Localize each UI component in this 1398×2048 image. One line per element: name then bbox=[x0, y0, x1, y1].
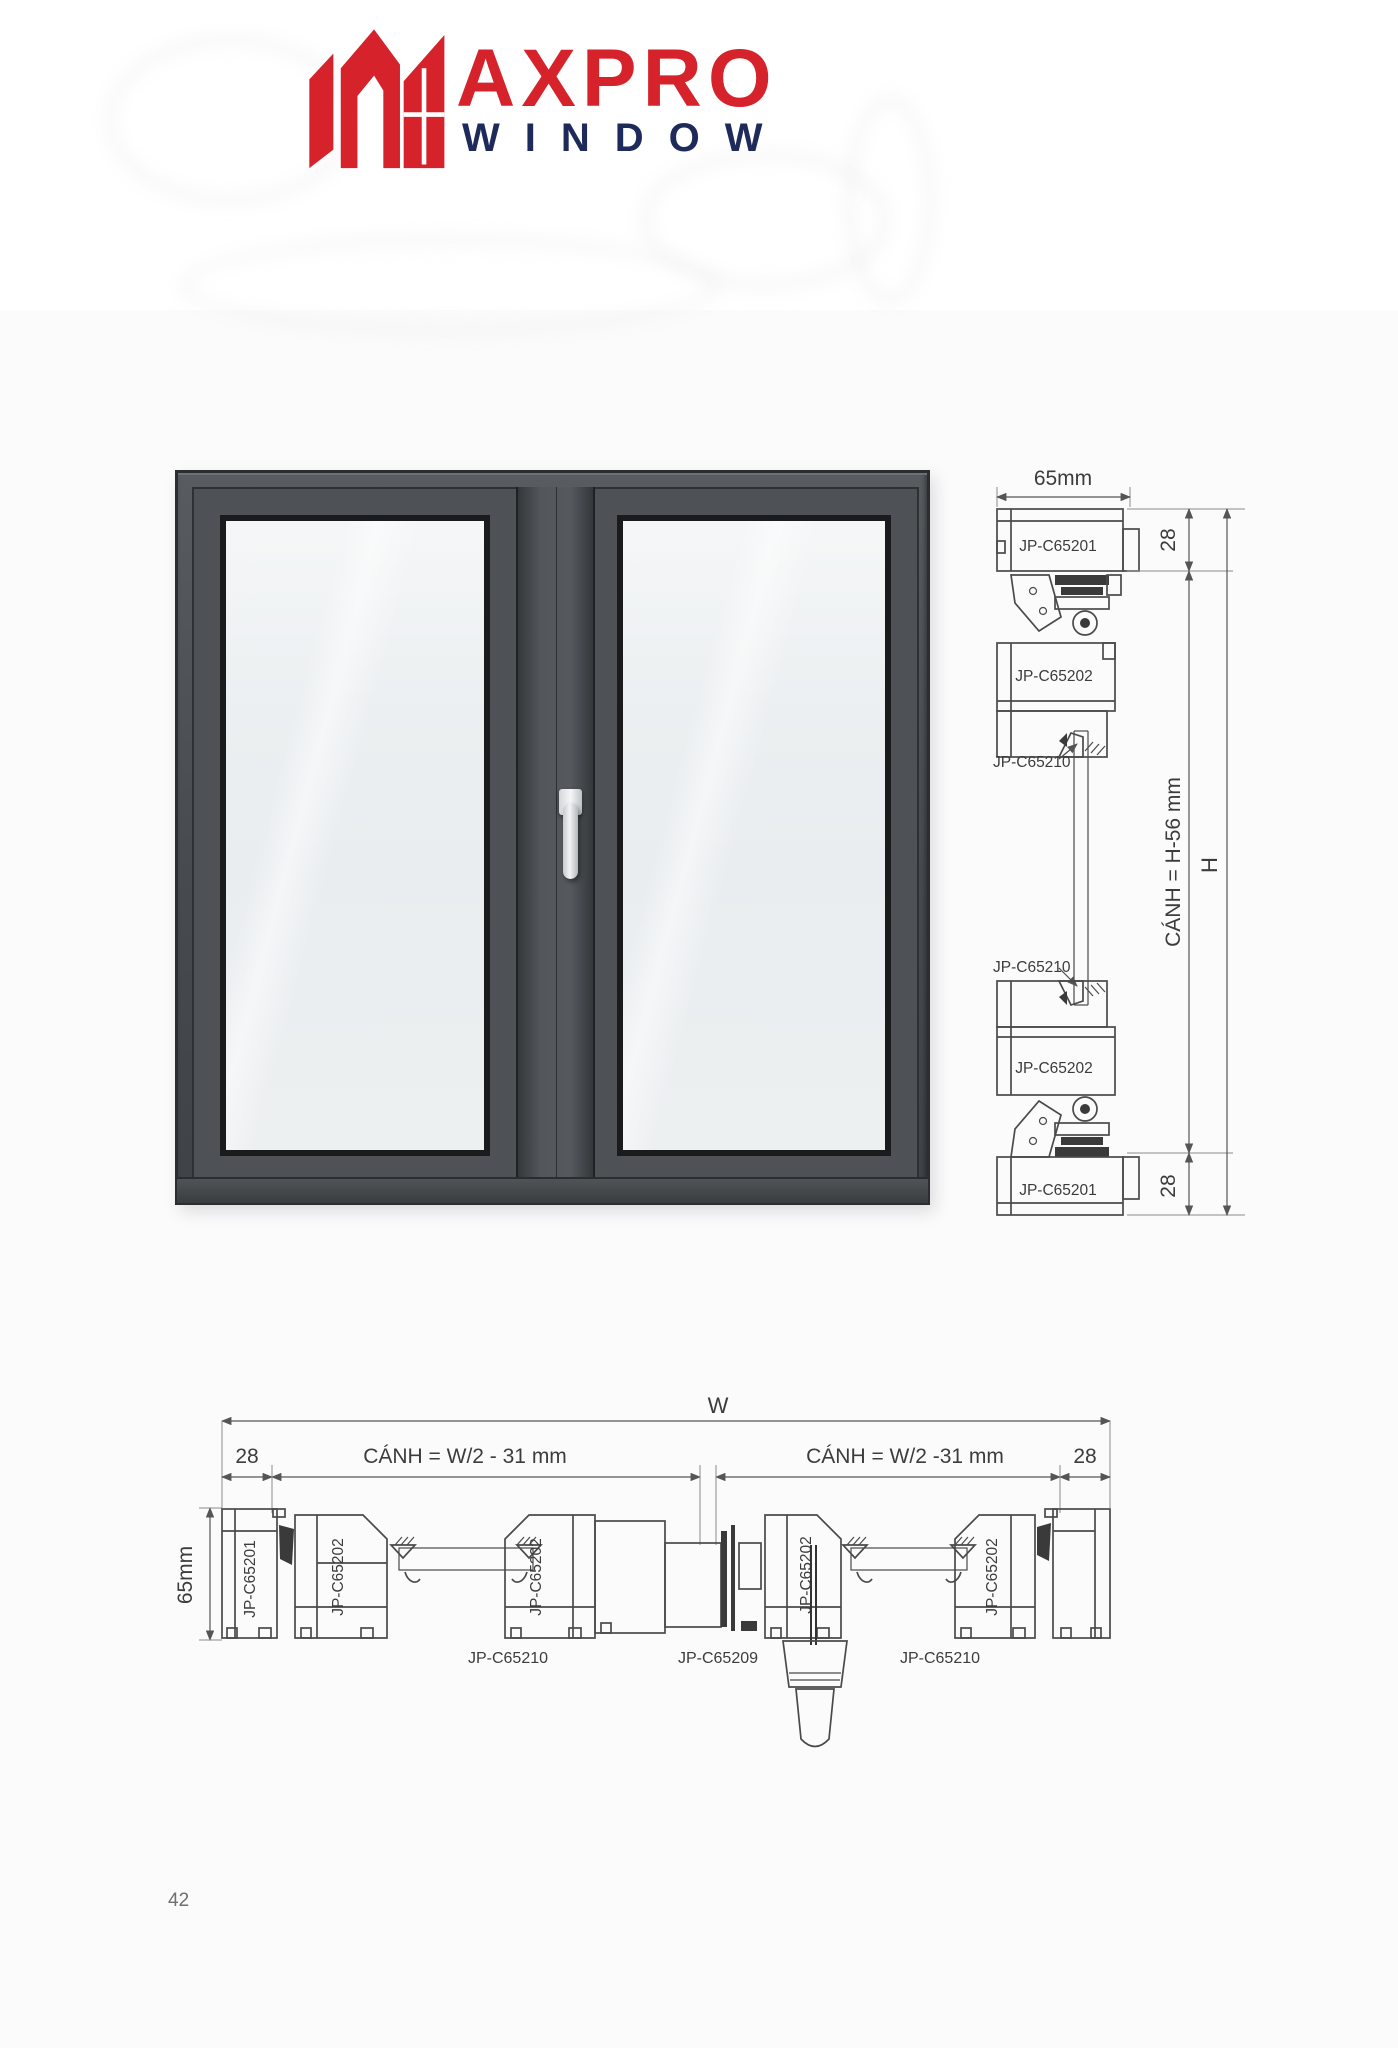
window-right-glass bbox=[617, 515, 891, 1156]
vsec-dim-sash: CÁNH = H-56 mm bbox=[1162, 777, 1185, 947]
vsec-label-bottom-bead: JP-C65210 bbox=[993, 959, 1071, 976]
vsec-label-bottom-frame: JP-C65201 bbox=[1019, 1182, 1097, 1199]
logo-text: AXPRO WINDOW bbox=[456, 22, 788, 161]
vsec-label-top-bead: JP-C65210 bbox=[993, 754, 1071, 771]
horizontal-cross-section: W 28 CÁNH = W/2 - 31 mm CÁNH = W/2 -31 m… bbox=[165, 1395, 1125, 1815]
vsec-dim-65mm: 65mm bbox=[1034, 467, 1092, 490]
hsec-dim-total: W bbox=[708, 1395, 729, 1418]
scan-artifact bbox=[845, 95, 935, 305]
hsec-label-center: JP-C65209 bbox=[678, 1650, 758, 1667]
hsec-label-bead-right: JP-C65210 bbox=[900, 1650, 980, 1667]
vsec-dim-28-top: 28 bbox=[1157, 528, 1180, 551]
hsec-dim-28-right: 28 bbox=[1073, 1445, 1096, 1468]
hsec-dim-sash-right: CÁNH = W/2 -31 mm bbox=[806, 1445, 1004, 1468]
vsec-label-bottom-sash: JP-C65202 bbox=[1015, 1060, 1093, 1077]
page-number: 42 bbox=[168, 1890, 189, 1912]
window-left-glass bbox=[220, 515, 490, 1156]
brand-logo: AXPRO WINDOW bbox=[296, 22, 788, 170]
hsec-label-sash-left-outer: JP-C65202 bbox=[330, 1538, 347, 1616]
brand-subtitle: WINDOW bbox=[456, 116, 788, 161]
vsec-dim-28-bottom: 28 bbox=[1157, 1174, 1180, 1197]
hsec-dim-28-left: 28 bbox=[235, 1445, 258, 1468]
scan-artifact bbox=[180, 235, 720, 335]
window-mullion bbox=[516, 487, 595, 1184]
window-right-sash bbox=[589, 487, 919, 1184]
logo-mark-icon bbox=[296, 22, 454, 170]
hsec-label-sash-right-inner: JP-C65202 bbox=[798, 1536, 815, 1614]
window-product-photo bbox=[175, 470, 930, 1205]
window-handle bbox=[563, 803, 578, 879]
hsec-label-frame-left: JP-C65201 bbox=[242, 1540, 259, 1618]
vsec-label-top-frame: JP-C65201 bbox=[1019, 538, 1097, 555]
vertical-cross-section: 65mm JP-C65201 JP-C65202 bbox=[955, 445, 1255, 1235]
hsec-label-bead-left: JP-C65210 bbox=[468, 1650, 548, 1667]
hsec-label-sash-right-outer: JP-C65202 bbox=[984, 1538, 1001, 1616]
vsec-label-top-sash: JP-C65202 bbox=[1015, 668, 1093, 685]
hsec-label-sash-left-inner: JP-C65202 bbox=[528, 1538, 545, 1616]
hsec-dim-height: 65mm bbox=[174, 1546, 197, 1604]
brand-name: AXPRO bbox=[456, 40, 788, 118]
window-sill bbox=[175, 1177, 930, 1205]
vsec-dim-total: H bbox=[1197, 857, 1222, 873]
window-left-sash bbox=[192, 487, 518, 1184]
hsec-dim-sash-left: CÁNH = W/2 - 31 mm bbox=[363, 1445, 567, 1468]
